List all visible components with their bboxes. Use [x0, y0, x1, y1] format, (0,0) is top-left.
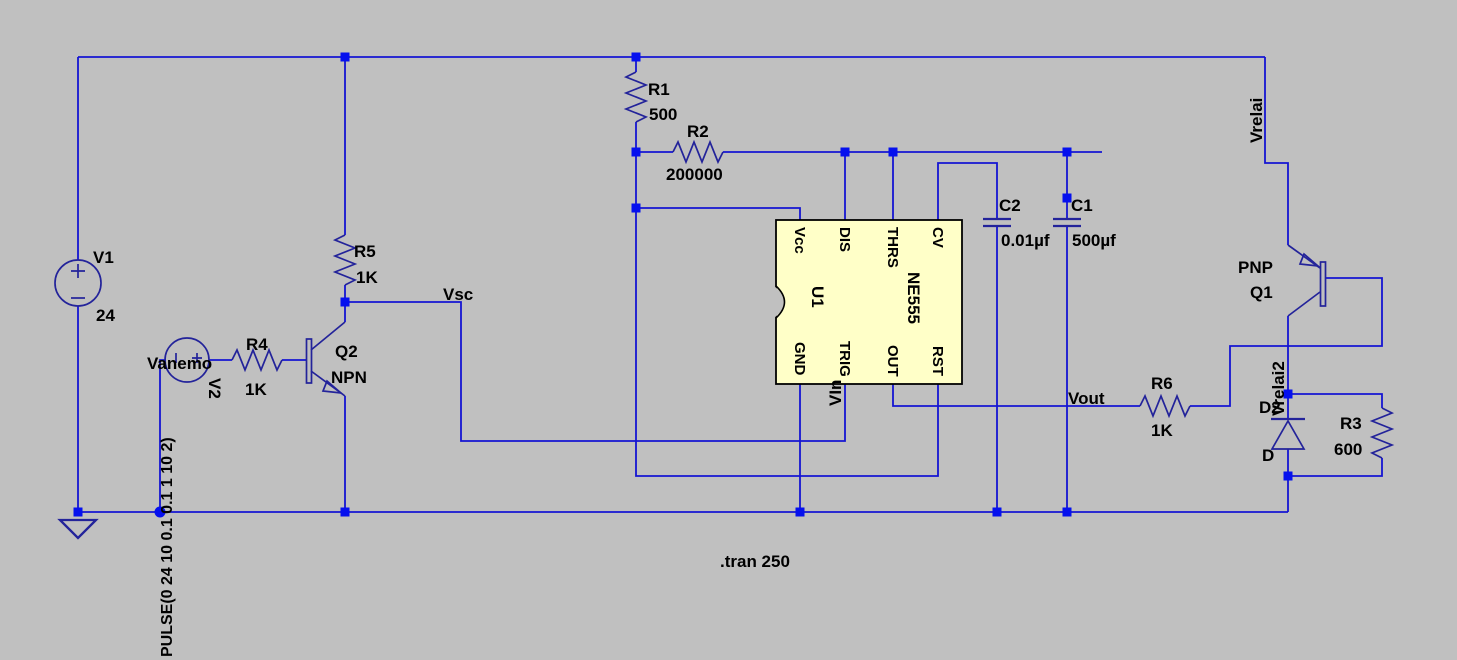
d2-model-label[interactable]: D [1262, 446, 1274, 465]
pin-label-dis: DIS [836, 227, 853, 252]
junction [341, 298, 350, 307]
q1-type-label[interactable]: PNP [1238, 258, 1273, 277]
junction [341, 53, 350, 62]
v2-name-label[interactable]: V2 [205, 378, 224, 399]
capacitor-c1[interactable] [1053, 219, 1081, 226]
c1-value-label[interactable]: 500µf [1072, 231, 1116, 250]
c1-plates [1053, 219, 1081, 226]
r3-name-label[interactable]: R3 [1340, 414, 1362, 433]
junction [74, 508, 83, 517]
resistor-r5[interactable] [335, 235, 355, 285]
resistor-r3[interactable] [1372, 408, 1392, 458]
spice-directive[interactable]: .tran 250 [720, 552, 790, 571]
net-vsc-label[interactable]: Vsc [443, 285, 473, 304]
resistor-r2[interactable] [673, 142, 723, 162]
r6-name-label[interactable]: R6 [1151, 374, 1173, 393]
pin-label-rst: RST [929, 346, 946, 376]
ic-part-number[interactable]: NE555 [904, 272, 923, 324]
pin-label-thrs: THRS [884, 227, 901, 268]
schematic-svg: Vcc DIS THRS CV GND TRIG OUT RST U1 NE55… [0, 0, 1457, 660]
junction [841, 148, 850, 157]
v2-pulse-label[interactable]: PULSE(0 24 10 0.1 0.1 1 10 2) [159, 437, 176, 657]
pin-label-out: OUT [884, 345, 901, 377]
r1-value-label[interactable]: 500 [649, 105, 677, 124]
plus-sign [71, 264, 85, 278]
wire-r3-bottom[interactable] [1288, 458, 1382, 476]
d2-name-label[interactable]: D2 [1259, 398, 1281, 417]
wire-vcc-tap[interactable] [636, 208, 800, 220]
ic-designator[interactable]: U1 [808, 286, 827, 308]
resistor-r1[interactable] [626, 72, 646, 122]
pin-label-trig: TRIG [836, 341, 853, 377]
q2-type-label[interactable]: NPN [331, 368, 367, 387]
c1-name-label[interactable]: C1 [1071, 196, 1093, 215]
net-vrelai-label[interactable]: Vrelai [1247, 98, 1266, 143]
r2-value-label[interactable]: 200000 [666, 165, 723, 184]
wire-cv-c2[interactable] [938, 163, 997, 220]
r3-value-label[interactable]: 600 [1334, 440, 1362, 459]
pin-label-vcc: Vcc [791, 227, 808, 254]
junction [1284, 472, 1293, 481]
junction [889, 148, 898, 157]
c2-name-label[interactable]: C2 [999, 196, 1021, 215]
diode-d2[interactable] [1271, 419, 1305, 449]
ground-symbol[interactable] [60, 520, 96, 538]
labels: V1 24 Vanemo V2 PULSE(0 24 10 0.1 0.1 1 … [93, 80, 1362, 657]
pin-label-gnd: GND [791, 342, 808, 376]
wires [78, 57, 1382, 512]
r5-name-label[interactable]: R5 [354, 242, 376, 261]
wire-vsc-trig[interactable] [345, 302, 845, 441]
schematic-canvas: Vcc DIS THRS CV GND TRIG OUT RST U1 NE55… [0, 0, 1457, 660]
r4-name-label[interactable]: R4 [246, 335, 268, 354]
r2-name-label[interactable]: R2 [687, 122, 709, 141]
junction [1063, 508, 1072, 517]
junction [341, 508, 350, 517]
net-vin-label[interactable]: VIn [826, 380, 845, 406]
junction [993, 508, 1002, 517]
r5-value-label[interactable]: 1K [356, 268, 378, 287]
junction-dots [74, 53, 1293, 518]
q1-name-label[interactable]: Q1 [1250, 283, 1273, 302]
junction [632, 204, 641, 213]
net-vout-label[interactable]: Vout [1068, 389, 1105, 408]
q2-base-bar [307, 339, 312, 383]
v1-value-label[interactable]: 24 [96, 306, 115, 325]
c2-plates [983, 219, 1011, 226]
junction [632, 148, 641, 157]
q2-name-label[interactable]: Q2 [335, 342, 358, 361]
ic-u1-ne555[interactable]: Vcc DIS THRS CV GND TRIG OUT RST U1 NE55… [774, 220, 962, 384]
q1-collector-lead [1288, 292, 1320, 316]
wire-r3-top[interactable] [1288, 394, 1382, 408]
v1-name-label[interactable]: V1 [93, 248, 114, 267]
r6-value-label[interactable]: 1K [1151, 421, 1173, 440]
transistor-q1-pnp[interactable] [1288, 245, 1326, 316]
junction [1063, 148, 1072, 157]
r1-name-label[interactable]: R1 [648, 80, 670, 99]
capacitor-c2[interactable] [983, 219, 1011, 226]
junction [796, 508, 805, 517]
c2-value-label[interactable]: 0.01µf [1001, 231, 1050, 250]
wire-vrelai[interactable] [1265, 57, 1288, 245]
d2-triangle [1272, 421, 1304, 449]
q1-base-bar [1321, 262, 1326, 306]
r4-value-label[interactable]: 1K [245, 380, 267, 399]
junction [632, 53, 641, 62]
pin-label-cv: CV [929, 227, 946, 248]
resistor-r6[interactable] [1140, 396, 1190, 416]
v2-net-label[interactable]: Vanemo [147, 354, 212, 373]
